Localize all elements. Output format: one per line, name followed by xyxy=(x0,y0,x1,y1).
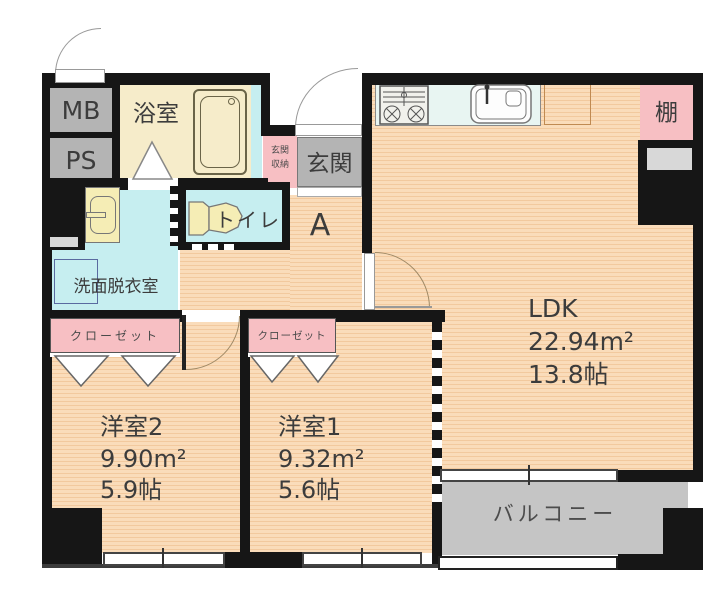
bedroom2-name: 洋室2 xyxy=(100,412,186,444)
ldk-label: LDK 22.94m² 13.8帖 xyxy=(528,292,634,391)
bedroom1-area-sqm: 9.32m² xyxy=(278,444,364,476)
closet-left-door-triangle-2 xyxy=(122,356,175,386)
bedroom1-area-tatami: 5.6帖 xyxy=(278,475,364,507)
kitchen-sink xyxy=(471,85,531,124)
closet-left-door-triangle-1 xyxy=(55,356,108,386)
toilet-label-text: トイレ xyxy=(215,204,281,233)
bedroom1-label: 洋室1 9.32m² 5.6帖 xyxy=(278,412,364,507)
washroom-label-text: 洗面脱衣室 xyxy=(74,272,159,297)
ldk-area-tatami: 13.8帖 xyxy=(528,358,634,391)
ldk-area-sqm: 22.94m² xyxy=(528,325,634,358)
bathroom-label-text: 浴室 xyxy=(133,94,179,128)
entrance-storage-label: 玄関 収納 xyxy=(263,145,297,179)
hallway-label: A xyxy=(300,206,340,244)
entrance-storage-line1: 玄関 xyxy=(263,145,297,159)
bathroom-label: 浴室 xyxy=(120,96,192,126)
entrance-label-text: 玄関 xyxy=(307,144,353,178)
washroom-label: 洗面脱衣室 xyxy=(56,272,176,296)
bedroom1-name: 洋室1 xyxy=(278,412,364,444)
entrance-label: 玄関 xyxy=(297,146,362,176)
bedroom2-area-sqm: 9.90m² xyxy=(100,444,186,476)
shelf-label-text: 棚 xyxy=(655,93,678,127)
shelf-label: 棚 xyxy=(640,80,693,140)
closet-right-door-triangle-2 xyxy=(298,356,338,382)
floor-plan: MB PS クローゼット クローゼット xyxy=(0,0,720,600)
entrance-storage-line2: 収納 xyxy=(263,159,297,173)
balcony-label: バルコニー xyxy=(460,495,650,530)
bedroom2-area-tatami: 5.9帖 xyxy=(100,475,186,507)
closet-right-door-triangle-1 xyxy=(251,356,294,382)
toilet-tank xyxy=(189,202,209,235)
ldk-name: LDK xyxy=(528,292,634,325)
stove xyxy=(380,86,428,124)
bedroom2-label: 洋室2 9.90m² 5.9帖 xyxy=(100,412,186,507)
hallway-label-text: A xyxy=(310,208,331,243)
toilet-label: トイレ xyxy=(208,204,288,232)
bathroom-door-triangle xyxy=(133,142,172,179)
balcony-label-text: バルコニー xyxy=(493,498,618,528)
